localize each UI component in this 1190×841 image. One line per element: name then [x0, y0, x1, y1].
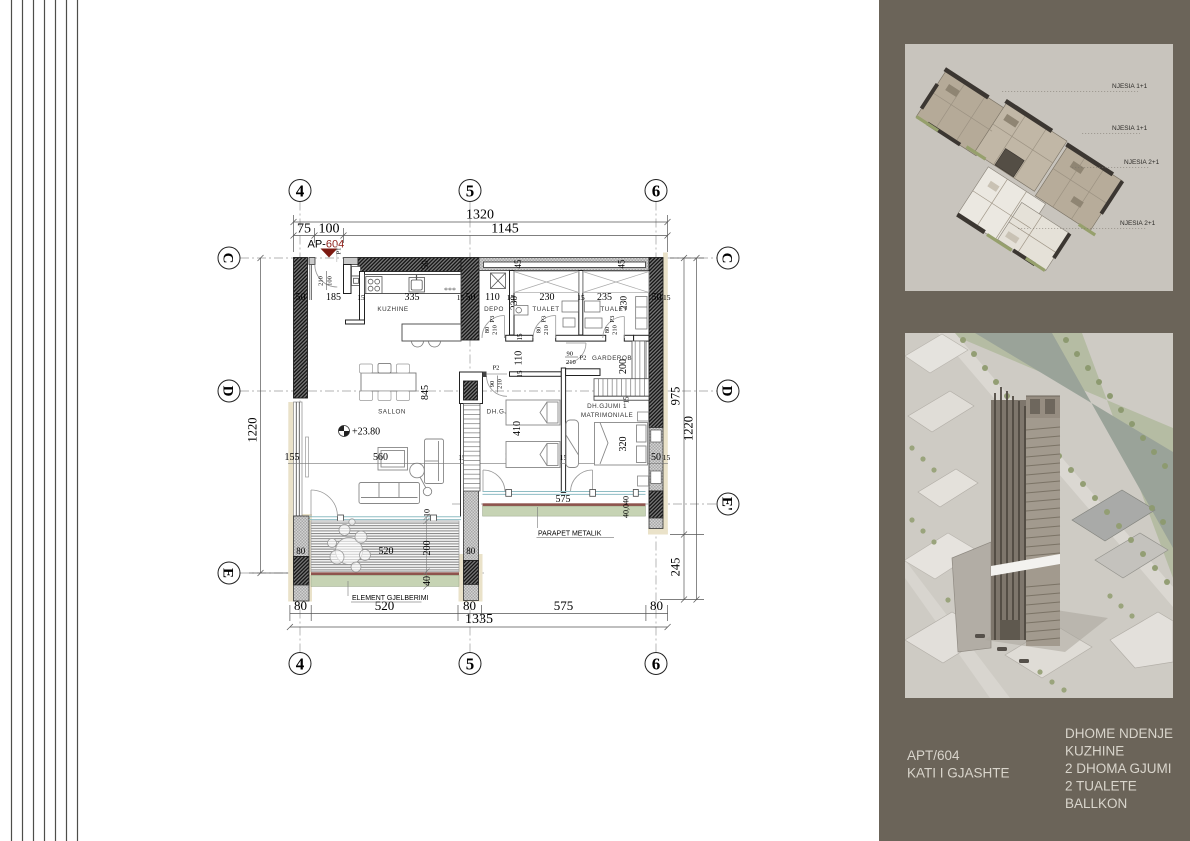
svg-text:80: 80: [650, 598, 663, 613]
svg-text:80: 80: [466, 546, 476, 556]
svg-text:1220: 1220: [682, 416, 696, 441]
svg-text:40,0: 40,0: [622, 504, 631, 518]
svg-text:320: 320: [618, 437, 629, 452]
svg-text:100: 100: [319, 222, 340, 237]
svg-text:575: 575: [554, 598, 574, 613]
svg-text:D: D: [719, 386, 735, 397]
svg-text:6: 6: [652, 655, 661, 674]
svg-text:P3: P3: [541, 316, 548, 323]
svg-text:15: 15: [516, 370, 524, 378]
svg-text:C: C: [719, 253, 735, 264]
svg-text:TUALET: TUALET: [600, 306, 627, 313]
svg-text:SALLON: SALLON: [378, 409, 406, 416]
svg-text:210: 210: [318, 276, 325, 286]
svg-text:E: E: [220, 568, 236, 578]
svg-text:PARAPET METALIK: PARAPET METALIK: [538, 531, 602, 538]
svg-text:ELEMENT GJELBERIMI: ELEMENT GJELBERIMI: [352, 595, 429, 602]
svg-text:50: 50: [420, 260, 430, 270]
svg-text:APT/604: APT/604: [907, 748, 960, 763]
svg-text:80: 80: [484, 327, 491, 334]
svg-text:NJESIA 1+1: NJESIA 1+1: [1112, 125, 1148, 132]
svg-text:520: 520: [379, 546, 394, 557]
svg-text:45: 45: [513, 259, 523, 269]
svg-text:NJESIA 2+1: NJESIA 2+1: [1120, 220, 1156, 227]
svg-text:40: 40: [422, 576, 433, 586]
svg-text:200: 200: [618, 359, 629, 374]
svg-text:1335: 1335: [465, 612, 493, 627]
svg-text:P2: P2: [580, 355, 587, 362]
svg-text:560: 560: [373, 452, 388, 463]
svg-text:DEPO: DEPO: [484, 306, 504, 313]
svg-text:GARDEROBE: GARDEROBE: [592, 355, 637, 362]
svg-text:40: 40: [622, 496, 631, 504]
svg-text:1145: 1145: [491, 222, 518, 237]
svg-text:P3: P3: [489, 316, 496, 323]
svg-text:6: 6: [652, 182, 661, 201]
svg-text:DHOME NDENJE: DHOME NDENJE: [1065, 726, 1173, 741]
svg-text:D: D: [220, 386, 236, 397]
svg-text:NJESIA 1+1: NJESIA 1+1: [1112, 83, 1148, 90]
svg-text:230: 230: [540, 292, 555, 303]
svg-text:845: 845: [420, 385, 431, 400]
svg-text:15: 15: [663, 293, 671, 302]
svg-text:50: 50: [651, 452, 661, 463]
svg-text:210: 210: [543, 325, 550, 335]
svg-text:15: 15: [357, 293, 365, 302]
svg-text:110: 110: [485, 292, 500, 303]
svg-text:80: 80: [604, 327, 611, 334]
svg-text:210: 210: [492, 325, 499, 335]
svg-text:185: 185: [326, 292, 341, 303]
svg-text:***: ***: [444, 286, 456, 295]
svg-text:2 TUALETE: 2 TUALETE: [1065, 779, 1137, 794]
svg-text:15: 15: [457, 293, 465, 302]
svg-text:75: 75: [297, 222, 311, 237]
svg-text:10: 10: [423, 509, 432, 517]
svg-text:5: 5: [466, 655, 475, 674]
svg-text:4: 4: [296, 655, 305, 674]
svg-text:50: 50: [466, 292, 476, 303]
svg-text:KUZHINE: KUZHINE: [377, 306, 408, 313]
svg-text:KUZHINE: KUZHINE: [1065, 744, 1124, 759]
svg-text:45: 45: [617, 259, 627, 269]
svg-text:DH.GJUMI 1: DH.GJUMI 1: [587, 403, 627, 410]
svg-text:MATRIMONIALE: MATRIMONIALE: [581, 412, 633, 419]
svg-text:410: 410: [512, 421, 523, 436]
svg-text:TUALET: TUALET: [532, 306, 559, 313]
svg-text:KATI I GJASHTE: KATI I GJASHTE: [907, 766, 1010, 781]
svg-text:+23.80: +23.80: [352, 427, 380, 438]
svg-text:210: 210: [612, 325, 619, 335]
svg-text:335: 335: [405, 292, 420, 303]
svg-text:80: 80: [296, 546, 306, 556]
svg-text:100: 100: [327, 276, 334, 286]
svg-text:110: 110: [514, 351, 525, 366]
svg-text:1220: 1220: [246, 418, 260, 443]
svg-text:15: 15: [663, 453, 671, 462]
svg-text:2 DHOMA GJUMI: 2 DHOMA GJUMI: [1065, 761, 1172, 776]
svg-text:975: 975: [669, 387, 683, 406]
svg-text:200: 200: [422, 541, 433, 556]
svg-text:1320: 1320: [466, 208, 494, 223]
svg-text:210: 210: [566, 359, 576, 366]
svg-text:E': E': [719, 497, 735, 511]
svg-text:5: 5: [466, 182, 475, 201]
svg-text:15: 15: [577, 293, 585, 302]
svg-text:P1: P1: [336, 248, 343, 255]
svg-text:50: 50: [652, 292, 662, 303]
svg-text:245: 245: [669, 558, 683, 577]
svg-text:P3: P3: [609, 316, 616, 323]
svg-text:155: 155: [285, 452, 300, 463]
svg-text:90: 90: [567, 351, 574, 358]
svg-text:4: 4: [296, 182, 305, 201]
svg-text:90: 90: [489, 381, 496, 388]
svg-text:C: C: [220, 253, 236, 264]
svg-text:15: 15: [516, 333, 524, 341]
svg-text:575: 575: [556, 494, 571, 505]
svg-text:80: 80: [536, 327, 543, 334]
svg-text:NJESIA 2+1: NJESIA 2+1: [1124, 159, 1160, 166]
svg-text:BALLKON: BALLKON: [1065, 796, 1127, 811]
svg-text:50: 50: [296, 292, 306, 303]
svg-text:P2: P2: [493, 365, 500, 372]
